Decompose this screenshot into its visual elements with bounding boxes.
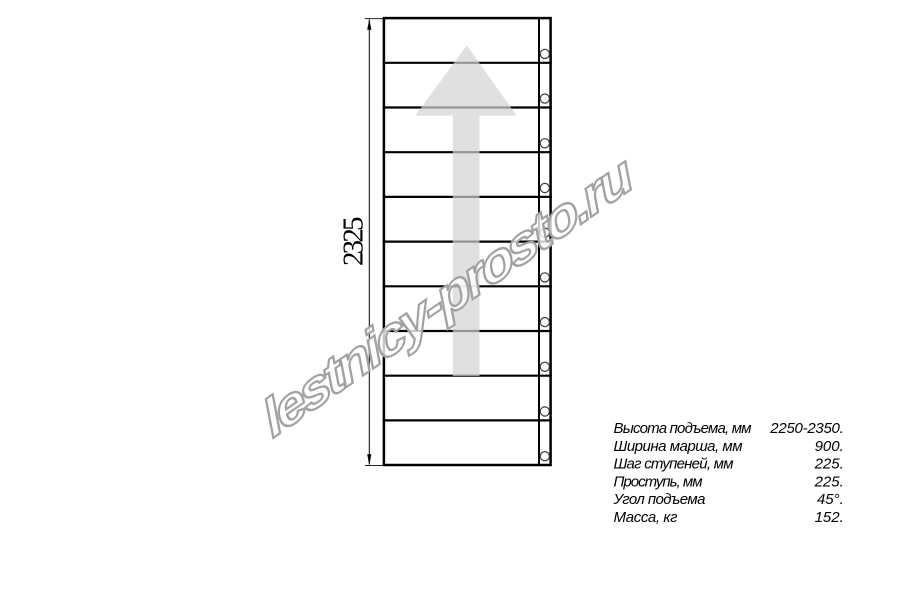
svg-text:Масса, кг: Масса, кг [614,509,679,526]
svg-text:45°.: 45°. [817,491,844,508]
svg-text:Угол подъема: Угол подъема [613,491,706,508]
svg-text:2250-2350.: 2250-2350. [769,420,844,437]
svg-text:Высота подъема, мм: Высота подъема, мм [614,420,752,437]
svg-text:225.: 225. [814,456,844,473]
svg-text:Шаг ступеней, мм: Шаг ступеней, мм [614,456,734,473]
svg-text:2325: 2325 [338,217,370,267]
svg-text:lestnicy-prosto.ru: lestnicy-prosto.ru [255,143,641,448]
svg-text:Ширина марша, мм: Ширина марша, мм [614,438,743,455]
svg-text:225.: 225. [814,473,844,490]
svg-text:152.: 152. [815,509,844,526]
svg-text:Проступь, мм: Проступь, мм [614,473,703,490]
svg-text:900.: 900. [815,438,844,455]
